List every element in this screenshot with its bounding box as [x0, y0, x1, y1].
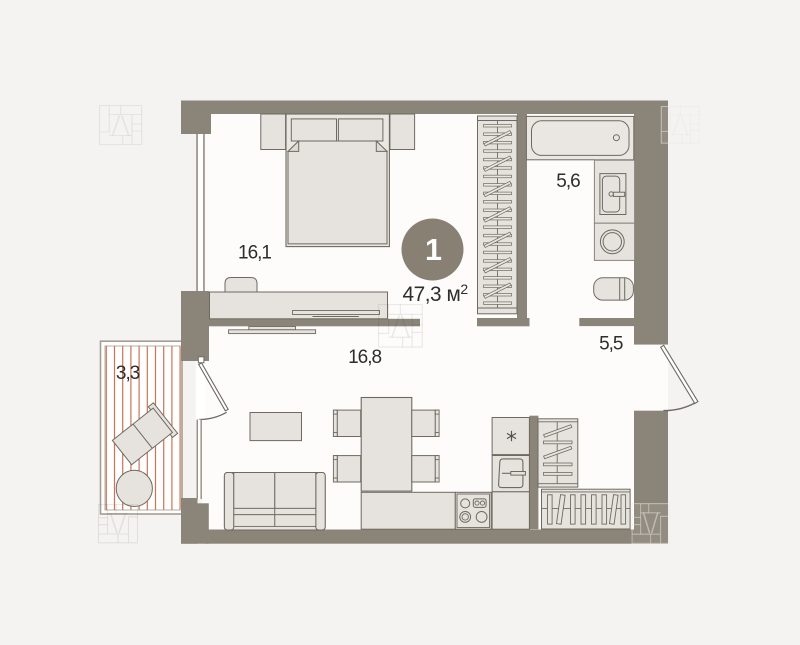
svg-text:16,8: 16,8 — [348, 347, 381, 368]
svg-text:5,5: 5,5 — [599, 334, 623, 355]
svg-text:47,3 м2: 47,3 м2 — [403, 281, 469, 306]
svg-text:1: 1 — [425, 233, 442, 267]
svg-text:5,6: 5,6 — [556, 171, 580, 192]
svg-text:16,1: 16,1 — [238, 243, 271, 264]
svg-text:3,3: 3,3 — [116, 363, 140, 384]
